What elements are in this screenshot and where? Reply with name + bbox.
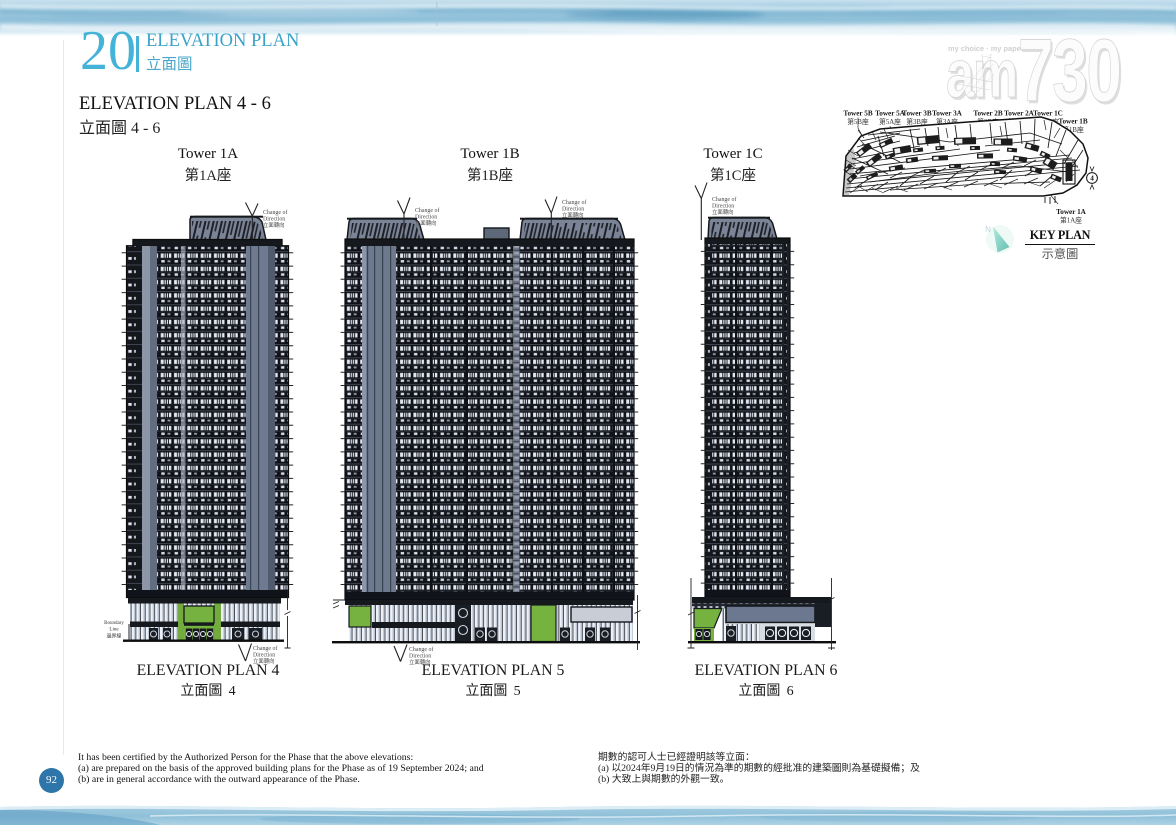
svg-text:Tower 1B: Tower 1B (1058, 118, 1088, 126)
svg-text:Tower 2B: Tower 2B (973, 110, 1003, 118)
svg-text:Line: Line (109, 628, 119, 633)
svg-text:Tower 5B: Tower 5B (843, 110, 873, 118)
svg-text:Tower 1C: Tower 1C (1033, 110, 1063, 118)
svg-text:立面轉向: 立面轉向 (263, 221, 285, 229)
svg-text:Direction: Direction (253, 653, 275, 659)
svg-text:Change of: Change of (409, 646, 433, 653)
svg-text:Change of: Change of (253, 645, 277, 652)
svg-text:Change of: Change of (415, 207, 439, 214)
svg-text:立面轉向: 立面轉向 (712, 208, 734, 216)
svg-text:Tower 1A: Tower 1A (1056, 208, 1087, 216)
svg-text:Tower 3A: Tower 3A (932, 110, 963, 118)
svg-text:立面轉向: 立面轉向 (562, 211, 584, 219)
svg-text:Change of: Change of (562, 199, 586, 206)
svg-text:4: 4 (1090, 175, 1094, 183)
svg-text:Direction: Direction (409, 654, 431, 660)
svg-text:邊界線: 邊界線 (107, 633, 122, 640)
svg-text:N: N (985, 225, 991, 234)
svg-text:Direction: Direction (415, 215, 437, 221)
svg-text:Direction: Direction (712, 204, 734, 210)
svg-text:Boundary: Boundary (104, 621, 124, 626)
svg-text:Tower 3B: Tower 3B (902, 110, 932, 118)
svg-text:Tower 2A: Tower 2A (1004, 110, 1035, 118)
svg-text:Direction: Direction (562, 207, 584, 213)
svg-text:Direction: Direction (263, 217, 285, 223)
svg-text:第5A座: 第5A座 (879, 117, 901, 126)
svg-text:第1A座: 第1A座 (1060, 216, 1082, 225)
svg-text:立面轉向: 立面轉向 (415, 219, 437, 227)
svg-text:Change of: Change of (263, 209, 287, 216)
svg-text:Tower 5A: Tower 5A (875, 110, 906, 118)
svg-text:Change of: Change of (712, 196, 736, 203)
